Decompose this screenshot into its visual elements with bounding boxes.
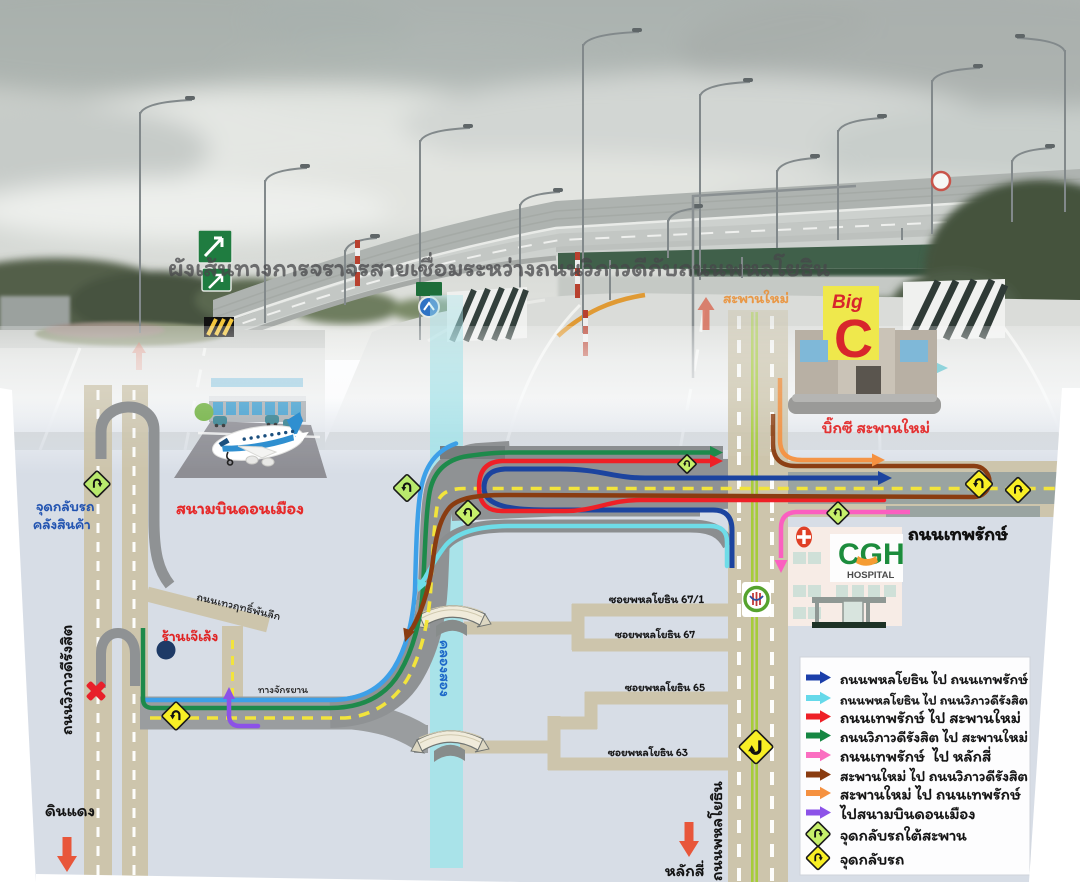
svg-text:C: C xyxy=(834,309,873,369)
svg-text:CGH: CGH xyxy=(838,538,905,571)
svg-text:HOSPITAL: HOSPITAL xyxy=(847,570,895,581)
